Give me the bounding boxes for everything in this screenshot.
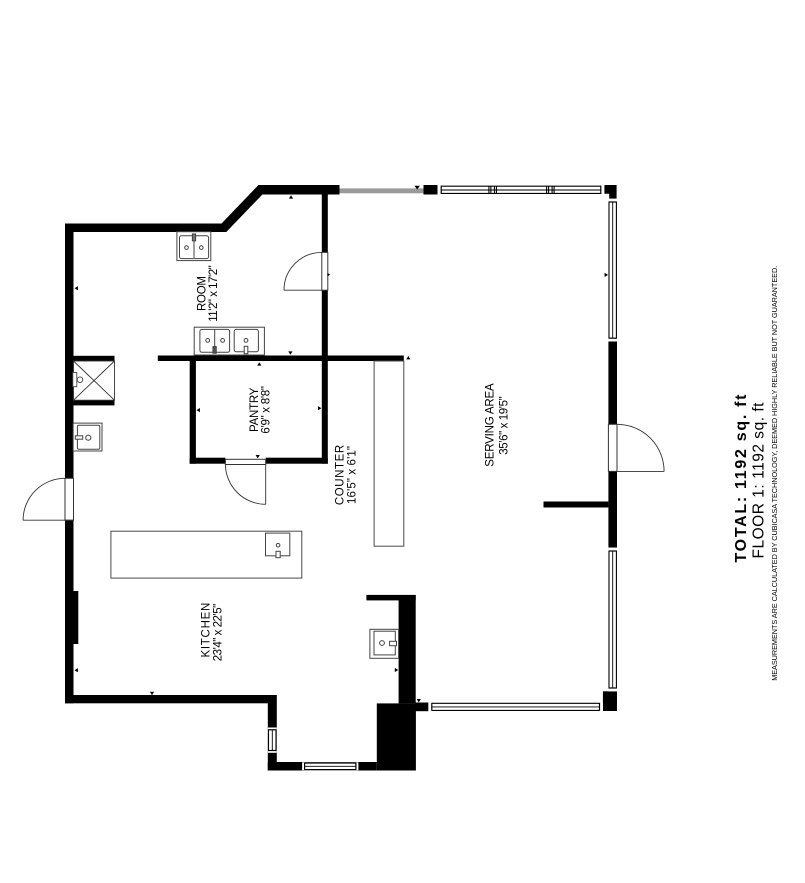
svg-text:COUNTER: COUNTER xyxy=(335,445,347,505)
svg-text:35'6" x 19'5": 35'6" x 19'5" xyxy=(498,396,510,454)
svg-text:23'4" x 22'5": 23'4" x 22'5" xyxy=(212,604,224,662)
svg-text:PANTRY: PANTRY xyxy=(249,387,261,432)
svg-text:TOTAL: 1192 sq. ft: TOTAL: 1192 sq. ft xyxy=(733,394,750,563)
svg-text:FLOOR 1: 1192 sq. ft: FLOOR 1: 1192 sq. ft xyxy=(751,402,768,559)
svg-text:16'5" x 6'1": 16'5" x 6'1" xyxy=(347,446,359,504)
svg-text:MEASUREMENTS ARE CALCULATED BY: MEASUREMENTS ARE CALCULATED BY CUBICASA … xyxy=(770,266,779,681)
svg-text:KITCHEN: KITCHEN xyxy=(201,603,213,658)
svg-text:SERVING AREA: SERVING AREA xyxy=(485,383,497,467)
svg-text:6'9" x 8'8": 6'9" x 8'8" xyxy=(261,386,273,434)
svg-text:11'2" x 17'2": 11'2" x 17'2" xyxy=(208,265,220,322)
svg-text:ROOM: ROOM xyxy=(197,276,209,311)
